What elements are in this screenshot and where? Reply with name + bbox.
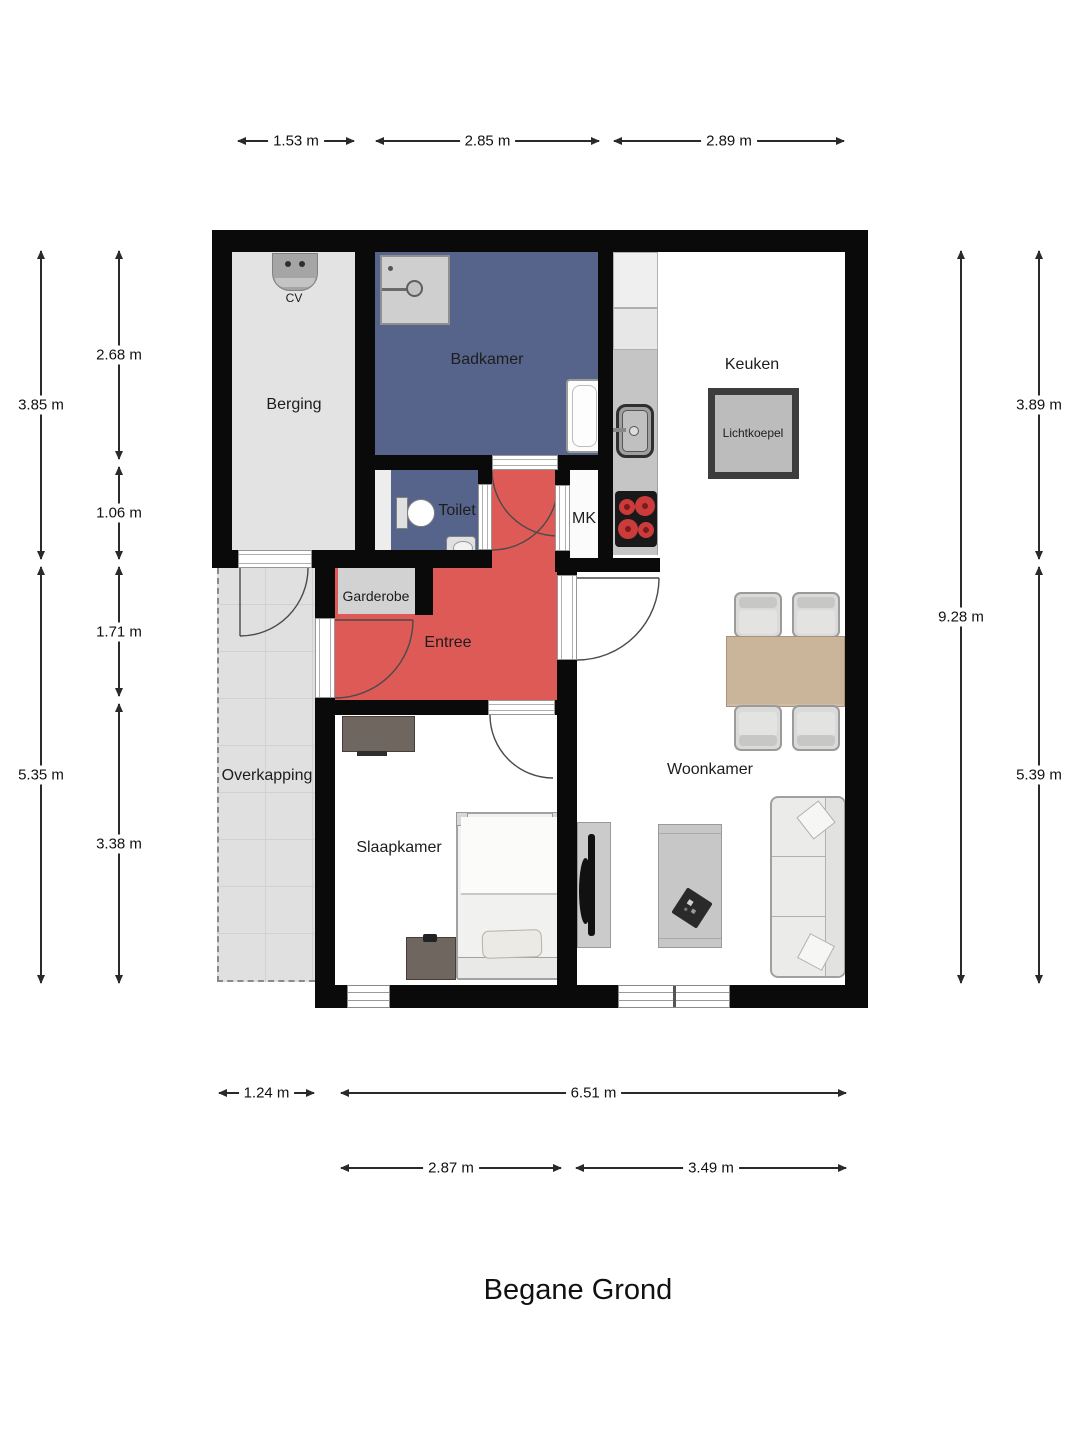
label-overkapping: Overkapping [222, 767, 313, 785]
label-keuken: Keuken [725, 356, 779, 374]
wall-left-upper [212, 230, 232, 568]
door-arc [577, 578, 659, 660]
door-berging [238, 550, 312, 568]
door-swing-arcs [0, 0, 1080, 1440]
label-woonkamer: Woonkamer [667, 761, 753, 779]
label-berging: Berging [266, 396, 321, 414]
wall-garderobe-stub [415, 568, 433, 615]
wall-badkamer-keuken [598, 252, 613, 572]
door-arc [492, 484, 558, 550]
label-toilet: Toilet [438, 502, 475, 520]
window-slaapkamer [347, 985, 390, 1008]
door-mk [555, 485, 570, 551]
door-badkamer [492, 455, 558, 470]
door-slaapkamer [488, 700, 555, 715]
door-arc [335, 620, 413, 698]
label-garderobe: Garderobe [343, 588, 410, 604]
label-mk: MK [572, 510, 596, 528]
wall-bottom [315, 985, 868, 1008]
door-overkapping-entree [315, 618, 335, 698]
label-lichtkoepel: Lichtkoepel [723, 426, 784, 440]
label-cv: CV [286, 291, 303, 305]
door-arc [492, 470, 558, 536]
door-arc [490, 715, 553, 778]
wall-right [845, 230, 868, 1008]
floor-plan-page: 1.53 m 2.85 m 2.89 m 3.85 m 5.35 m 2.68 … [0, 0, 1080, 1440]
wall-top [212, 230, 868, 252]
label-slaapkamer: Slaapkamer [356, 839, 441, 857]
door-toilet [478, 484, 492, 550]
wall-berging-badkamer [355, 252, 375, 550]
window-mullion [673, 986, 676, 1007]
window-woonkamer [618, 985, 730, 1008]
door-arc [240, 568, 308, 636]
wall-badkamer-bottom [375, 455, 598, 470]
door-entree-woonkamer [557, 575, 577, 660]
wall-below-counter [555, 558, 660, 572]
label-entree: Entree [424, 634, 471, 652]
page-title: Begane Grond [398, 1274, 758, 1307]
label-badkamer: Badkamer [451, 351, 524, 369]
